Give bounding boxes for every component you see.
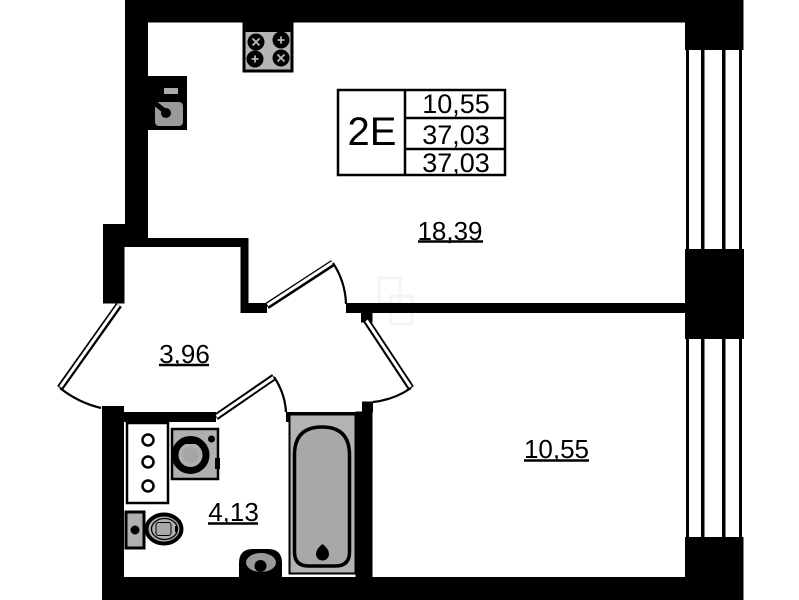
svg-text:37,03: 37,03 [422, 120, 490, 150]
svg-text:2Е: 2Е [348, 110, 397, 154]
svg-text:37,03: 37,03 [422, 148, 490, 178]
svg-text:10,55: 10,55 [422, 89, 490, 119]
